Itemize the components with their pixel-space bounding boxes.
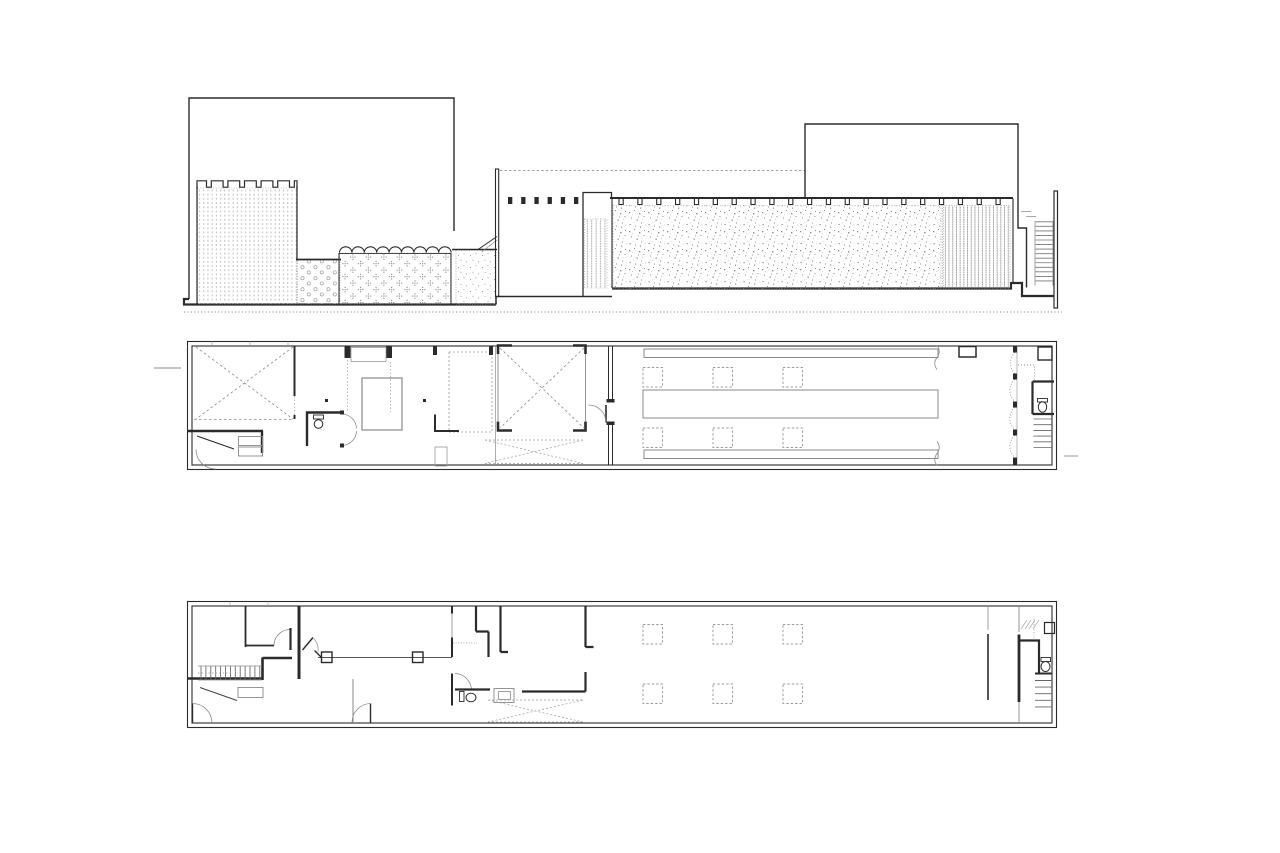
wall-box (959, 347, 976, 358)
door-swing (589, 405, 607, 423)
toilet (1038, 402, 1046, 412)
sink (499, 692, 511, 700)
route-dotted (1018, 365, 1035, 380)
striped-wall-block (583, 193, 612, 297)
entry-stair (188, 658, 371, 724)
sparse-stipple-wall (452, 237, 497, 305)
ground-line-mid (496, 297, 612, 305)
column-dot (423, 399, 426, 402)
hall-entry (589, 346, 615, 465)
thin-party-wall (496, 169, 499, 297)
storage-room (188, 431, 263, 469)
centre-rooms (452, 606, 594, 722)
shaft-box (1038, 347, 1052, 360)
stair-ground (1035, 681, 1052, 707)
wc-upper (1033, 382, 1055, 415)
patio-void (498, 346, 586, 431)
column-dashed (643, 428, 663, 448)
stair-void (433, 346, 496, 466)
lower-roof-cross (485, 440, 583, 464)
column-dashed (713, 368, 733, 388)
top-niche (345, 346, 393, 362)
column-grid (643, 625, 803, 704)
inner-wall-line (192, 606, 1052, 723)
toilet (466, 693, 476, 701)
toilet (314, 420, 323, 429)
window-ticks (212, 342, 288, 347)
door-swing (274, 630, 290, 646)
hatch-shelf (1021, 620, 1039, 629)
scalloped-floral-wall (339, 247, 451, 304)
column-dashed (783, 684, 803, 704)
architectural-drawing (0, 0, 1280, 853)
circle-hatch-wall (296, 260, 341, 305)
drawing-sheet (0, 0, 1280, 853)
upper-floor-plan (154, 342, 1078, 470)
column-dashed (643, 625, 663, 645)
table (362, 378, 402, 430)
column-dashed (713, 625, 733, 645)
door-swing (352, 704, 371, 723)
counter (494, 689, 514, 703)
column-dashed (783, 428, 803, 448)
bathroom (307, 411, 357, 448)
door-swing (455, 674, 472, 691)
inner-wall-line (192, 346, 1052, 465)
long-stipple-wall (610, 198, 1013, 289)
rooflight-bars (643, 349, 938, 459)
outer-wall (188, 602, 1057, 728)
section-drawing (184, 98, 1062, 312)
folding-partition (1010, 346, 1017, 466)
lightwell-cross (488, 700, 583, 722)
front-partitions (246, 606, 319, 679)
door-swing (196, 450, 216, 470)
column-dashed (643, 368, 663, 388)
break-lines (935, 346, 940, 466)
column-dashed (783, 368, 803, 388)
right-end-wall (1054, 191, 1058, 308)
window-ticks (230, 602, 268, 607)
toilet-tank (314, 415, 324, 419)
right-end-rooms (988, 606, 1055, 723)
void-cross-front (194, 347, 294, 420)
column-grid (643, 368, 803, 448)
partition-traces (348, 360, 391, 412)
column-dashed (713, 684, 733, 704)
clerestory-openings (508, 197, 578, 204)
double-door-swing (342, 414, 357, 446)
entry-door-swing (193, 704, 213, 724)
column-dot (325, 399, 328, 402)
ground-floor-plan (188, 602, 1057, 728)
stair-upper (1034, 419, 1053, 448)
toilet (1041, 662, 1050, 672)
column-dashed (643, 684, 663, 704)
wall-box (1045, 623, 1055, 634)
column-dashed (713, 428, 733, 448)
crenellated-wall (197, 181, 297, 304)
glazed-partition (315, 651, 453, 663)
column-dashed (783, 625, 803, 645)
